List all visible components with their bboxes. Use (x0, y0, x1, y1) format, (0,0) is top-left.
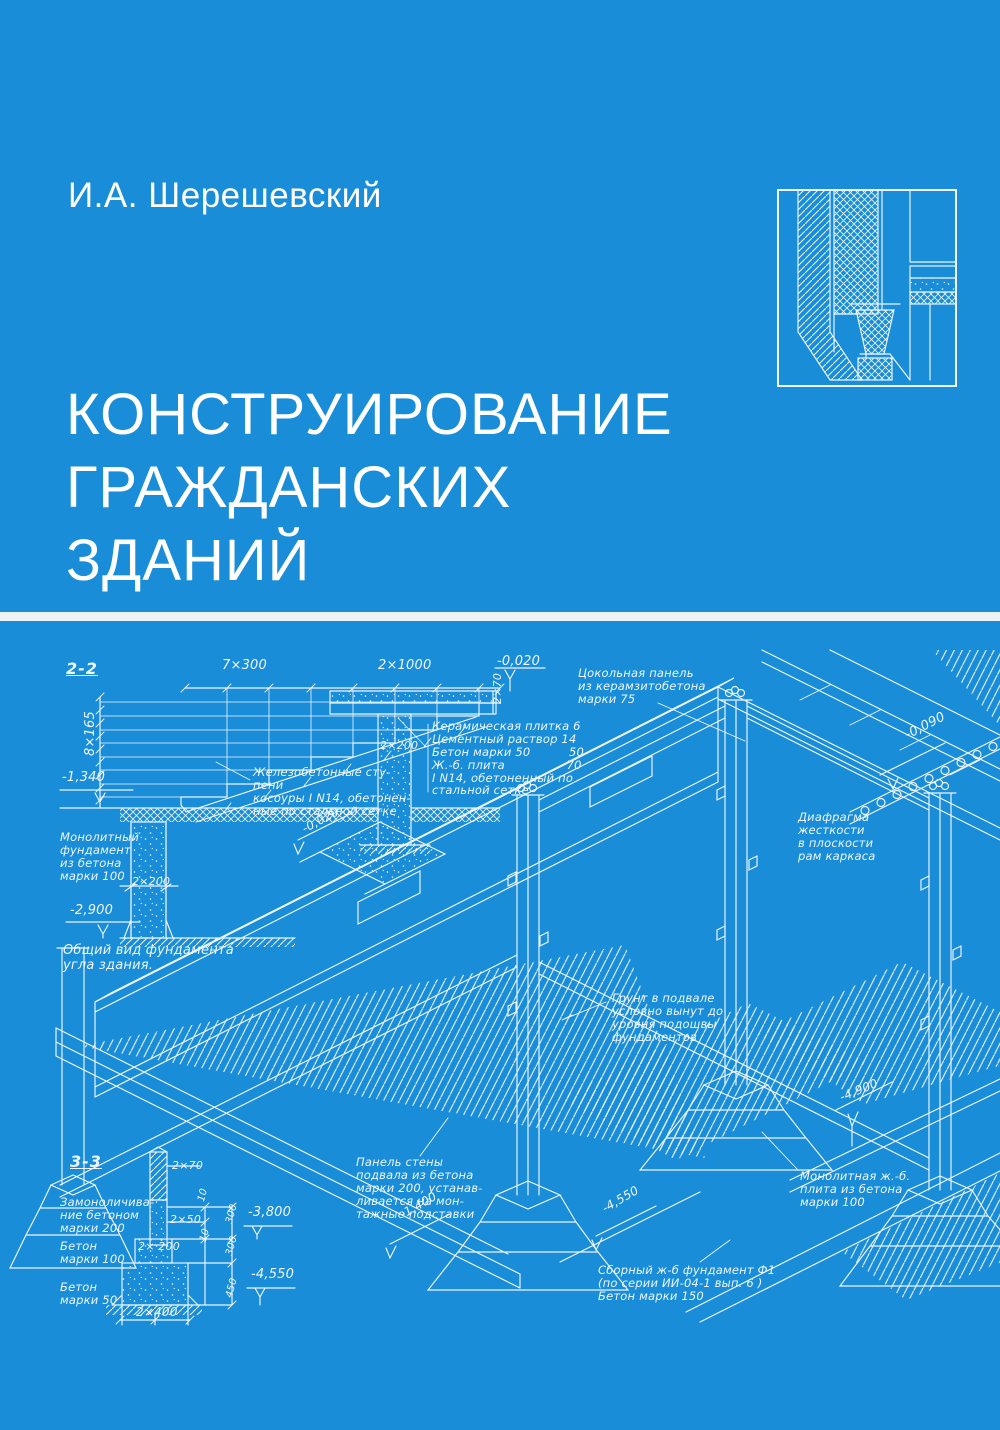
divider-band (0, 612, 1000, 621)
annotation: Цокольная панель из керамзитобетона марк… (578, 667, 706, 706)
annotation: Бетон марки 50 (60, 1281, 117, 1307)
book-cover: И.А. Шерешевский КОНСТРУИРОВАНИЕ ГРАЖДАН… (0, 0, 1000, 1430)
annotation: 2×400 (136, 1306, 178, 1319)
annotation: -1,340 (62, 771, 105, 786)
annotation: 2×200 (380, 740, 418, 752)
annotation: 2×70 (492, 673, 504, 704)
annotation: Керамическая плитка 6 Цементный раствор … (432, 720, 584, 797)
annotation: 2×70 (172, 1160, 203, 1172)
annotation: 2× 200 (138, 1241, 180, 1253)
annotation: 2×1000 (378, 659, 431, 674)
annotation: 8×165 (84, 711, 99, 756)
annotation: 3-3 (70, 1153, 102, 1171)
annotation: 7×300 (222, 659, 267, 674)
corner-detail-thumbnail (778, 190, 956, 386)
annotation: Диафрагма жесткости в плоскости рам карк… (798, 811, 876, 863)
annotation: 2-2 (66, 660, 98, 678)
annotation: 2×200 (132, 876, 170, 888)
annotation: -2,900 (70, 904, 113, 919)
annotation: Монолитный фундамент из бетона марки 100 (60, 831, 139, 883)
annotation: Сборный ж-б фундамент Ф1 (по серии ИИ-04… (598, 1264, 775, 1303)
annotation: -3,800 (248, 1206, 291, 1221)
annotation: Бетон марки 100 (60, 1240, 125, 1266)
annotation: Замоноличива- ние бетоном марки 200 (60, 1196, 154, 1235)
annotation: 2×50 (170, 1214, 201, 1226)
annotation: Монолитная ж.-б. плита из бетона марки 1… (800, 1170, 910, 1209)
annotation: -4,550 (251, 1268, 294, 1283)
annotation: Общий вид фундамента угла здания. (63, 944, 234, 973)
annotation: Грунт в подвале условно вынут до уровня … (612, 992, 723, 1044)
annotation: -0,020 (497, 655, 540, 670)
